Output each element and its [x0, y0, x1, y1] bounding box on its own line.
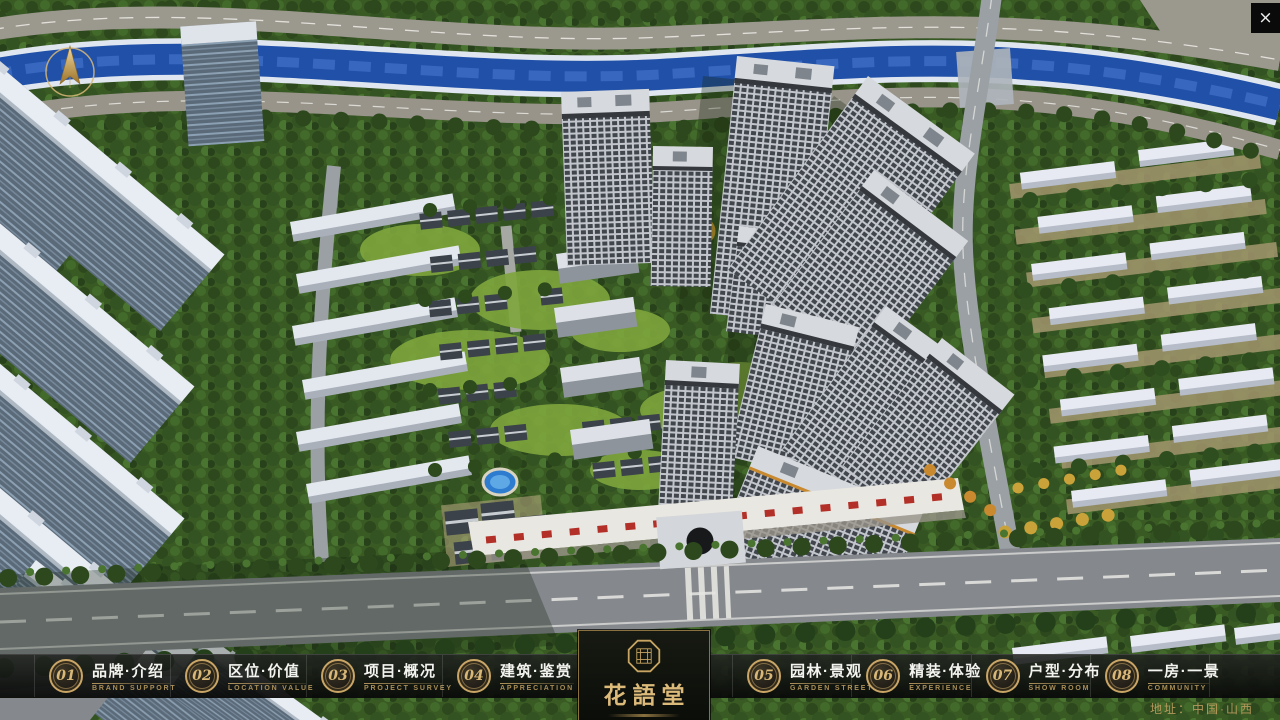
- nav-number-badge: 05: [747, 659, 781, 693]
- label-divider: [1148, 683, 1209, 684]
- seal-emblem-icon: [626, 638, 662, 674]
- nav-item-architecture[interactable]: 04 建筑·鉴赏 APPRECIATION: [442, 655, 578, 697]
- bottom-navbar-right: 05 园林·景观 GARDEN STREET 06 精装·体验 EXPERIEN…: [710, 654, 1280, 698]
- nav-number-badge: 07: [986, 659, 1020, 693]
- navbar-spacer: [1209, 655, 1280, 697]
- nav-item-sublabel: LOCATION VALUE: [228, 685, 306, 692]
- nav-item-label: 建筑·鉴赏: [500, 660, 574, 681]
- nav-number-badge: 08: [1105, 659, 1139, 693]
- nav-number-badge: 04: [457, 659, 491, 693]
- nav-item-sublabel: EXPERIENCE: [909, 685, 970, 692]
- label-divider: [92, 683, 170, 684]
- nav-number-badge: 03: [321, 659, 355, 693]
- nav-item-floorplans[interactable]: 07 户型·分布 SHOW ROOM: [971, 655, 1090, 697]
- nav-item-location-value[interactable]: 02 区位·价值 LOCATION VALUE: [170, 655, 306, 697]
- project-logo-panel[interactable]: 花語堂: [578, 630, 710, 720]
- nav-item-label: 园林·景观: [790, 660, 851, 681]
- nav-item-project-survey[interactable]: 03 项目·概况 PROJECT SURVEY: [306, 655, 442, 697]
- nav-number-badge: 02: [185, 659, 219, 693]
- nav-number-badge: 06: [866, 659, 900, 693]
- nav-item-label: 精装·体验: [909, 660, 970, 681]
- logo-tagline-rule: [608, 714, 680, 717]
- nav-item-sublabel: COMMUNITY: [1148, 685, 1209, 692]
- nav-item-label: 一房·一景: [1148, 660, 1209, 681]
- address-text: 地址：中国·山西: [1150, 700, 1254, 717]
- nav-item-sublabel: GARDEN STREET: [790, 685, 851, 692]
- nav-item-label: 项目·概况: [364, 660, 442, 681]
- nav-number-badge: 01: [49, 659, 83, 693]
- nav-item-room-view[interactable]: 08 一房·一景 COMMUNITY: [1090, 655, 1209, 697]
- nav-item-label: 户型·分布: [1029, 660, 1090, 681]
- nav-item-label: 品牌·介绍: [92, 660, 170, 681]
- nav-item-label: 区位·价值: [228, 660, 306, 681]
- nav-item-sublabel: SHOW ROOM: [1029, 685, 1090, 692]
- nav-item-sublabel: PROJECT SURVEY: [364, 685, 442, 692]
- aerial-masterplan-render: [0, 0, 1280, 720]
- nav-item-brand-intro[interactable]: 01 品牌·介绍 BRAND SUPPORT: [34, 655, 170, 697]
- nav-item-sublabel: APPRECIATION: [500, 685, 574, 692]
- label-divider: [364, 683, 442, 684]
- nav-item-sublabel: BRAND SUPPORT: [92, 685, 170, 692]
- nav-item-interior-experience[interactable]: 06 精装·体验 EXPERIENCE: [851, 655, 970, 697]
- bottom-navbar-left: 01 品牌·介绍 BRAND SUPPORT 02 区位·价值 LOCATION…: [0, 654, 578, 698]
- label-divider: [909, 683, 970, 684]
- compass-north-icon: [38, 38, 102, 102]
- label-divider: [500, 683, 574, 684]
- project-logo-title: 花語堂: [598, 676, 691, 710]
- close-button[interactable]: ×: [1251, 3, 1280, 33]
- presentation-window: × 01 品牌·介绍 BRAND SUPPORT 02 区位·价值 LOCATI…: [0, 0, 1280, 720]
- label-divider: [1029, 683, 1090, 684]
- nav-item-garden-landscape[interactable]: 05 园林·景观 GARDEN STREET: [732, 655, 851, 697]
- label-divider: [228, 683, 306, 684]
- label-divider: [790, 683, 851, 684]
